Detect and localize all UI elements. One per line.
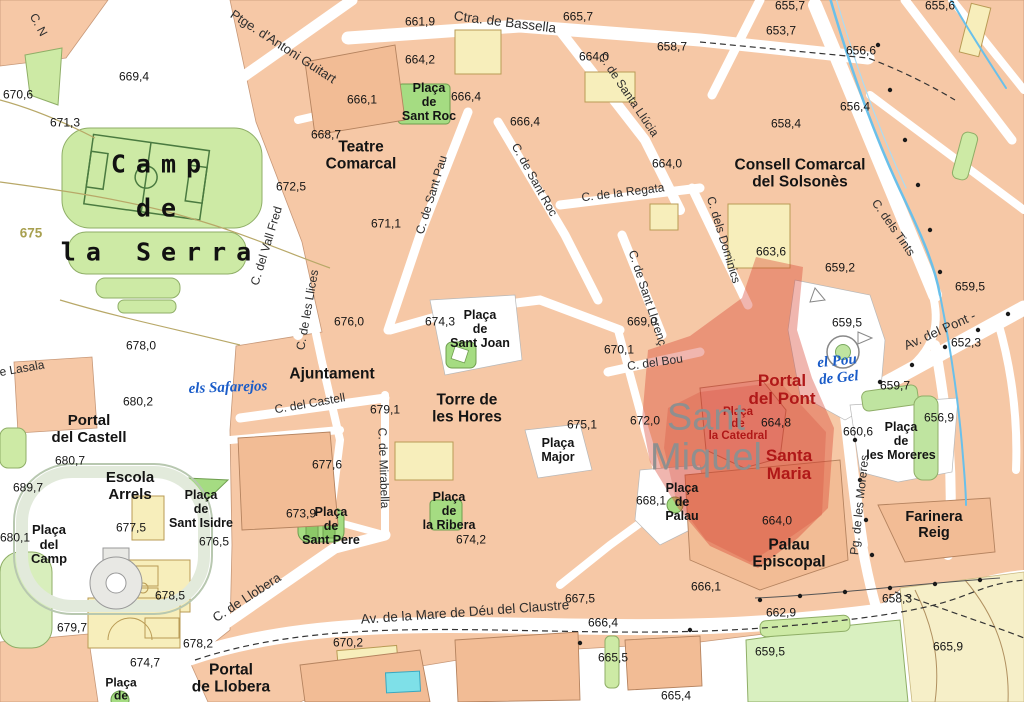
elevation-label: 676,0 bbox=[334, 315, 364, 328]
elevation-label: 660,6 bbox=[843, 425, 873, 438]
street-label: Pg. de les Moreres bbox=[848, 454, 872, 556]
street-label: C. del Vall Fred bbox=[249, 205, 286, 287]
elevation-label: 677,5 bbox=[116, 521, 146, 534]
place-label: Plaça de les Moreres bbox=[866, 420, 935, 462]
landmark-label: Plaça de la Catedral bbox=[709, 406, 768, 442]
landmark-label: Santa Maria bbox=[766, 447, 812, 483]
street-label: Av. del Pont - bbox=[902, 309, 978, 354]
elevation-label: 676,5 bbox=[199, 535, 229, 548]
place-label: Plaça de bbox=[105, 677, 136, 702]
city-map-canvas[interactable]: 665,7661,9664,2664,0658,7655,7655,6653,7… bbox=[0, 0, 1024, 702]
elevation-label: 664,8 bbox=[761, 416, 791, 429]
elevation-label: 659,5 bbox=[755, 645, 785, 658]
elevation-label: 665,5 bbox=[598, 651, 628, 664]
street-label: C. de Mirabella bbox=[375, 427, 391, 508]
water-feature-label: el Pou de Gel bbox=[817, 351, 860, 389]
elevation-label: 680,1 bbox=[0, 531, 30, 544]
elevation-label: 659,2 bbox=[825, 261, 855, 274]
street-label: C. de Sant Roc bbox=[508, 141, 559, 219]
elevation-label: 656,9 bbox=[924, 411, 954, 424]
elevation-label: 674,3 bbox=[425, 315, 455, 328]
street-label: C. dels Dominics bbox=[703, 195, 742, 285]
elevation-label: 673,9 bbox=[286, 507, 316, 520]
street-label: C. de Santa Llúcia bbox=[595, 51, 661, 140]
elevation-label: 666,1 bbox=[347, 93, 377, 106]
place-label: Plaça de Palau bbox=[665, 481, 698, 523]
street-label: Av. de la Mare de Déu del Claustre bbox=[360, 597, 569, 627]
street-label: C. de les Llices bbox=[294, 269, 321, 351]
place-label: Torre de les Hores bbox=[432, 392, 502, 427]
place-label: Plaça de la Ribera bbox=[423, 490, 476, 532]
elevation-label: 675 bbox=[20, 225, 43, 240]
place-label: Consell Comarcal del Solsonès bbox=[735, 157, 866, 192]
elevation-label: 656,4 bbox=[840, 100, 870, 113]
elevation-label: 678,2 bbox=[183, 637, 213, 650]
elevation-label: 665,7 bbox=[563, 10, 593, 23]
place-label: Escola Arrels bbox=[106, 470, 154, 504]
elevation-label: 668,1 bbox=[636, 494, 666, 507]
elevation-label: 677,6 bbox=[312, 458, 342, 471]
place-label: Plaça Major bbox=[541, 436, 574, 464]
elevation-label: 666,4 bbox=[588, 616, 618, 629]
elevation-label: 679,1 bbox=[370, 403, 400, 416]
street-label: C. de Llobera bbox=[210, 571, 283, 626]
elevation-label: 655,7 bbox=[775, 0, 805, 13]
elevation-label: 670,1 bbox=[604, 343, 634, 356]
street-label: C. del Bou bbox=[626, 352, 683, 373]
elevation-label: 669,0 bbox=[627, 315, 657, 328]
place-label: Ajuntament bbox=[289, 365, 374, 382]
place-label: Plaça del Camp bbox=[31, 523, 67, 567]
place-label: Plaça de Sant Roc bbox=[402, 81, 456, 123]
elevation-label: 668,7 bbox=[311, 128, 341, 141]
elevation-label: 678,0 bbox=[126, 339, 156, 352]
street-label: C. N bbox=[26, 11, 49, 38]
place-label: Palau Episcopal bbox=[752, 537, 825, 572]
elevation-label: 664,0 bbox=[579, 50, 609, 63]
landmark-label: Portal del Pont bbox=[748, 372, 815, 408]
elevation-label: 665,9 bbox=[933, 640, 963, 653]
street-label: Ptge. d'Antoni Guitart bbox=[227, 7, 338, 86]
street-label: C. de Sant Pau bbox=[414, 154, 451, 236]
elevation-label: 666,4 bbox=[510, 115, 540, 128]
elevation-label: 670,2 bbox=[333, 636, 363, 649]
place-label: Portal de Llobera bbox=[192, 662, 270, 697]
water-feature-label: els Safarejos bbox=[188, 378, 267, 398]
street-label: C. del Castell bbox=[274, 391, 347, 417]
elevation-label: 658,3 bbox=[882, 592, 912, 605]
street-label: C. de la Regata bbox=[581, 181, 665, 205]
elevation-label: 675,1 bbox=[567, 418, 597, 431]
elevation-label: 664,2 bbox=[405, 53, 435, 66]
place-label: Farinera Reig bbox=[905, 509, 962, 541]
highlighted-area-label: Sant Miquel bbox=[650, 398, 762, 479]
elevation-label: 671,3 bbox=[50, 116, 80, 129]
elevation-label: 652,3 bbox=[951, 336, 981, 349]
elevation-label: 671,1 bbox=[371, 217, 401, 230]
place-label: Plaça de Sant Isidre bbox=[169, 488, 233, 530]
elevation-label: 674,2 bbox=[456, 533, 486, 546]
elevation-label: 679,7 bbox=[57, 621, 87, 634]
elevation-label: 663,6 bbox=[756, 245, 786, 258]
elevation-label: 678,5 bbox=[155, 589, 185, 602]
elevation-label: 669,4 bbox=[119, 70, 149, 83]
place-label-camp-de-la-serra: Camp de la Serra bbox=[61, 142, 261, 273]
elevation-label: 659,5 bbox=[832, 316, 862, 329]
street-label: Ctra. de Bassella bbox=[453, 8, 557, 36]
elevation-label: 666,1 bbox=[691, 580, 721, 593]
place-label: Teatre Comarcal bbox=[326, 139, 397, 174]
elevation-label: 670,6 bbox=[3, 88, 33, 101]
elevation-label: 655,6 bbox=[925, 0, 955, 13]
street-label: C. de Sant Llorenç bbox=[625, 249, 668, 348]
elevation-label: 680,2 bbox=[123, 395, 153, 408]
elevation-label: 662,9 bbox=[766, 606, 796, 619]
street-label: C. dels Tints bbox=[869, 197, 918, 259]
elevation-label: 659,7 bbox=[880, 379, 910, 392]
elevation-label: 665,4 bbox=[661, 689, 691, 702]
place-label: Plaça de Sant Pere bbox=[302, 505, 360, 547]
elevation-label: 667,5 bbox=[565, 592, 595, 605]
street-label: e Lasala bbox=[0, 358, 46, 379]
elevation-label: 656,6 bbox=[846, 44, 876, 57]
place-label: Plaça de Sant Joan bbox=[450, 308, 510, 350]
elevation-label: 672,0 bbox=[630, 414, 660, 427]
elevation-label: 672,5 bbox=[276, 180, 306, 193]
elevation-label: 664,0 bbox=[762, 514, 792, 527]
elevation-label: 658,7 bbox=[657, 40, 687, 53]
elevation-label: 680,7 bbox=[55, 454, 85, 467]
elevation-label: 666,4 bbox=[451, 90, 481, 103]
elevation-label: 689,7 bbox=[13, 481, 43, 494]
elevation-label: 661,9 bbox=[405, 15, 435, 28]
elevation-label: 664,0 bbox=[652, 157, 682, 170]
elevation-label: 674,7 bbox=[130, 656, 160, 669]
map-labels-layer: 665,7661,9664,2664,0658,7655,7655,6653,7… bbox=[0, 0, 1024, 702]
place-label: Portal del Castell bbox=[51, 413, 126, 447]
elevation-label: 659,5 bbox=[955, 280, 985, 293]
elevation-label: 658,4 bbox=[771, 117, 801, 130]
elevation-label: 653,7 bbox=[766, 24, 796, 37]
